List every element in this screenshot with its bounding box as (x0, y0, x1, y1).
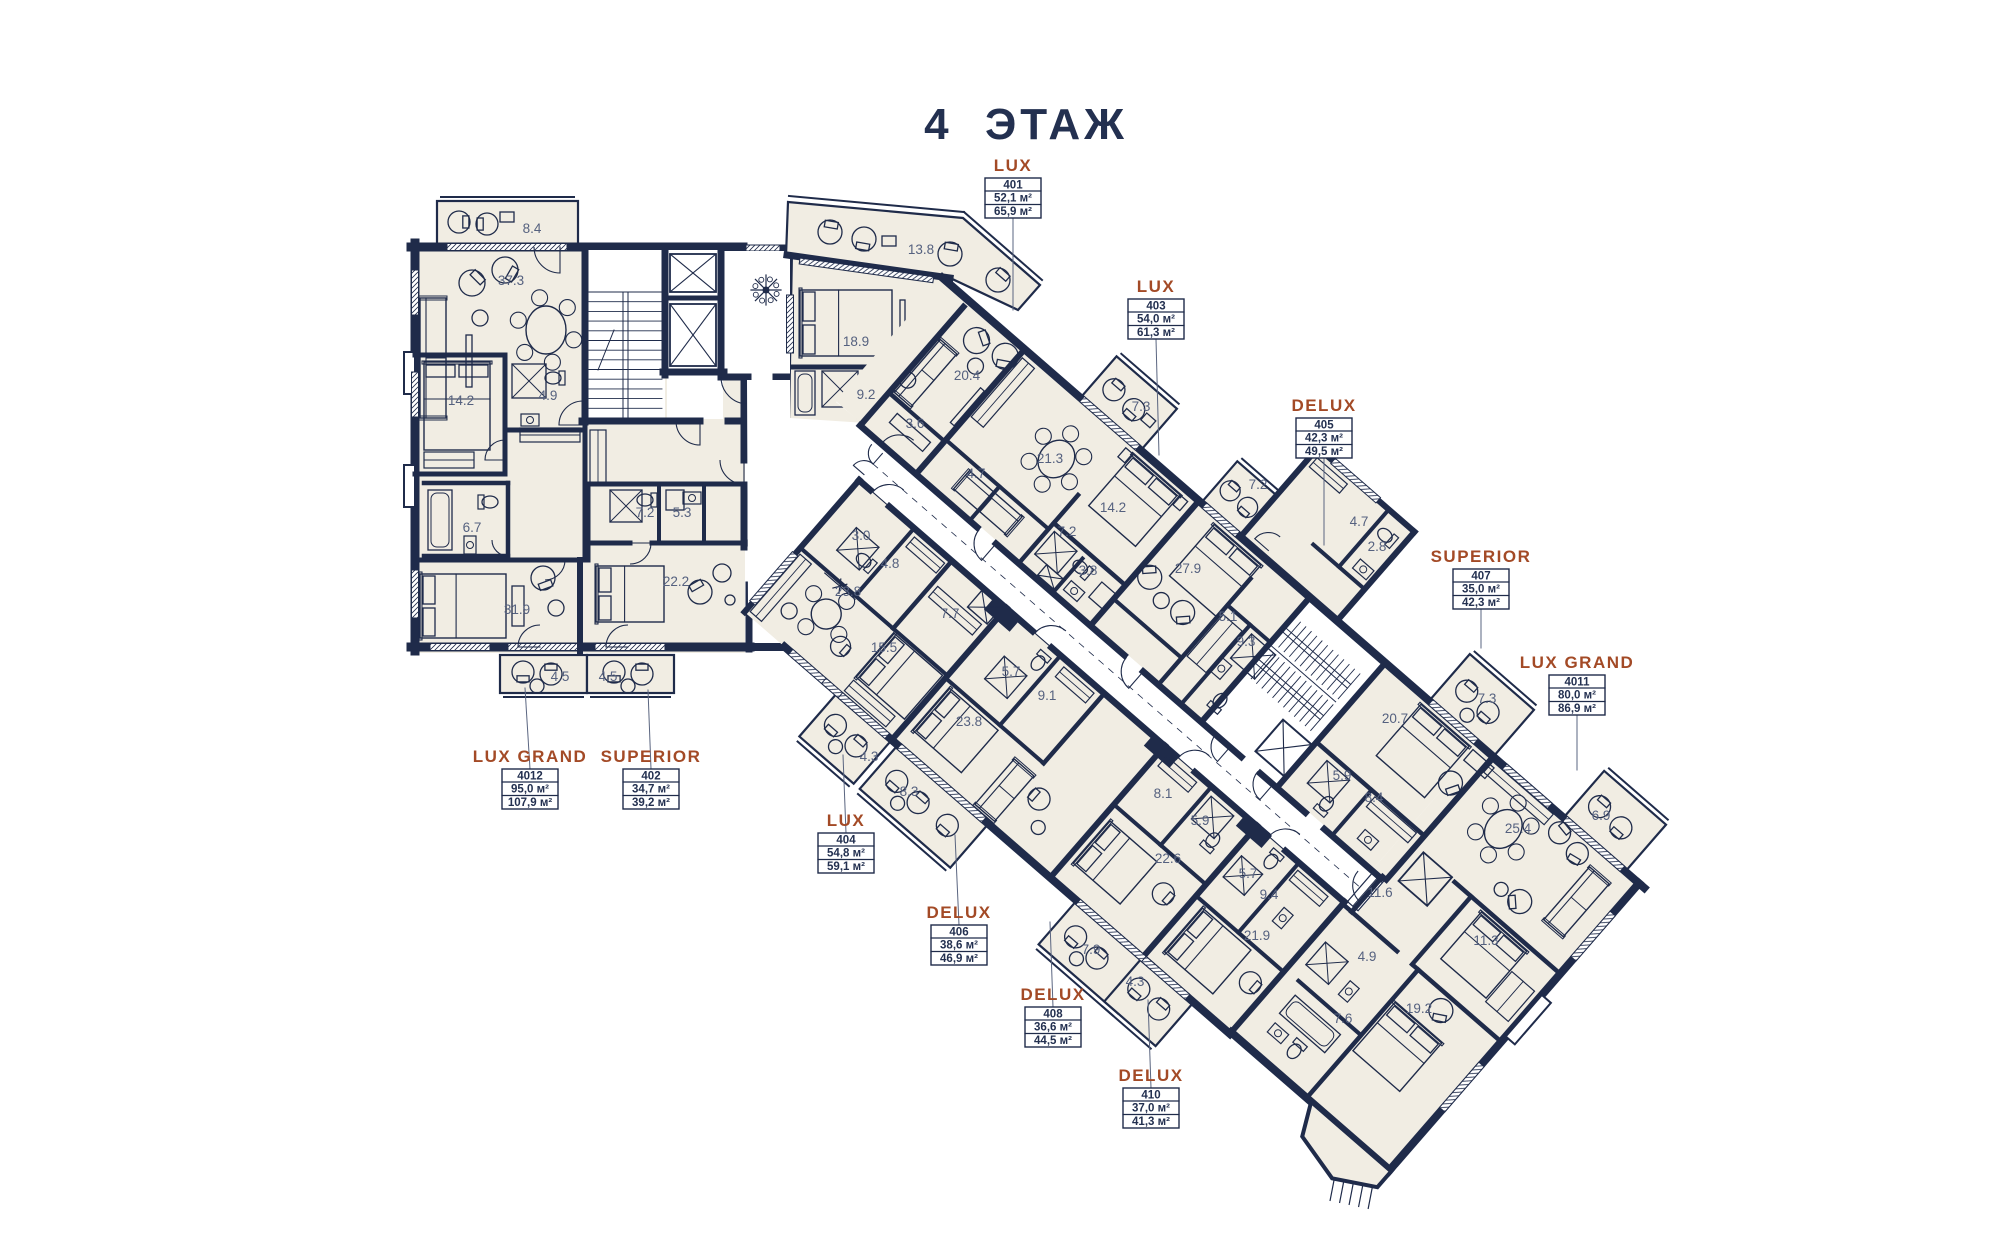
svg-text:54,0 м²: 54,0 м² (1137, 314, 1175, 326)
svg-text:3.6: 3.6 (906, 416, 925, 431)
svg-text:34,7 м²: 34,7 м² (632, 784, 670, 796)
svg-text:15.5: 15.5 (871, 640, 897, 655)
svg-text:7.6: 7.6 (1334, 1011, 1353, 1026)
svg-text:95,0 м²: 95,0 м² (511, 784, 549, 796)
svg-text:9.4: 9.4 (1260, 887, 1279, 902)
svg-text:4.7: 4.7 (1350, 514, 1369, 529)
svg-text:54,8 м²: 54,8 м² (827, 848, 865, 860)
svg-text:4.5: 4.5 (551, 669, 570, 684)
svg-text:23.8: 23.8 (956, 714, 982, 729)
svg-text:41,3 м²: 41,3 м² (1132, 1116, 1170, 1128)
svg-text:4.9: 4.9 (539, 388, 558, 403)
svg-text:14.2: 14.2 (448, 393, 474, 408)
svg-text:2.8: 2.8 (1368, 539, 1387, 554)
svg-text:31.9: 31.9 (504, 602, 530, 617)
svg-text:5.9: 5.9 (1333, 768, 1352, 783)
svg-text:19.2: 19.2 (1406, 1001, 1432, 1016)
svg-text:25.4: 25.4 (1505, 821, 1532, 836)
svg-text:7.3: 7.3 (1132, 399, 1151, 414)
svg-text:27.9: 27.9 (1175, 561, 1201, 576)
svg-text:8.4: 8.4 (523, 221, 542, 236)
svg-text:37.3: 37.3 (498, 273, 524, 288)
svg-text:5.7: 5.7 (1002, 664, 1021, 679)
svg-text:DELUX: DELUX (1020, 985, 1085, 1004)
svg-text:52,1 м²: 52,1 м² (994, 193, 1032, 205)
svg-text:7.2: 7.2 (1058, 524, 1077, 539)
svg-text:49,5 м²: 49,5 м² (1305, 446, 1343, 458)
svg-text:22.2: 22.2 (663, 574, 689, 589)
svg-text:4.8: 4.8 (881, 556, 900, 571)
svg-text:4011: 4011 (1565, 677, 1591, 689)
svg-text:11.6: 11.6 (1367, 885, 1392, 900)
svg-text:36,6 м²: 36,6 м² (1034, 1022, 1072, 1034)
svg-text:7.2: 7.2 (1249, 477, 1268, 492)
svg-text:4 ЭТАЖ: 4 ЭТАЖ (924, 100, 1128, 149)
svg-text:403: 403 (1146, 301, 1165, 313)
svg-text:9.3: 9.3 (1237, 634, 1256, 649)
svg-text:20.7: 20.7 (1382, 711, 1408, 726)
svg-text:SUPERIOR: SUPERIOR (601, 747, 702, 766)
svg-text:35,0 м²: 35,0 м² (1462, 584, 1500, 596)
svg-text:21.3: 21.3 (1037, 451, 1063, 466)
svg-text:405: 405 (1314, 420, 1334, 432)
svg-text:DELUX: DELUX (926, 903, 991, 922)
svg-text:SUPERIOR: SUPERIOR (1431, 547, 1532, 566)
svg-text:DELUX: DELUX (1118, 1066, 1183, 1085)
svg-text:107,9 м²: 107,9 м² (508, 797, 552, 809)
svg-text:44,5 м²: 44,5 м² (1034, 1035, 1072, 1047)
svg-text:4012: 4012 (517, 771, 543, 783)
svg-text:20.4: 20.4 (954, 368, 981, 383)
svg-text:39,2 м²: 39,2 м² (632, 797, 670, 809)
svg-text:13.8: 13.8 (908, 242, 934, 257)
svg-text:37,0 м²: 37,0 м² (1132, 1103, 1170, 1115)
svg-text:8.1: 8.1 (1154, 786, 1173, 801)
svg-text:18.9: 18.9 (843, 334, 869, 349)
svg-text:8.3: 8.3 (900, 784, 919, 799)
svg-text:38,6 м²: 38,6 м² (940, 940, 978, 952)
svg-text:46,9 м²: 46,9 м² (940, 953, 978, 965)
svg-text:LUX: LUX (1137, 277, 1176, 296)
svg-text:407: 407 (1471, 571, 1490, 583)
svg-text:11.3: 11.3 (1473, 933, 1498, 948)
svg-text:408: 408 (1043, 1009, 1063, 1021)
svg-text:23.8: 23.8 (835, 584, 861, 599)
svg-text:4.3: 4.3 (1126, 974, 1145, 989)
svg-text:65,9 м²: 65,9 м² (994, 206, 1032, 218)
svg-text:DELUX: DELUX (1291, 396, 1356, 415)
svg-text:6.7: 6.7 (463, 520, 482, 535)
svg-text:86,9 м²: 86,9 м² (1558, 703, 1596, 715)
svg-text:3.0: 3.0 (852, 528, 871, 543)
svg-text:61,3 м²: 61,3 м² (1137, 327, 1175, 339)
svg-text:21.9: 21.9 (1244, 928, 1270, 943)
svg-text:22.6: 22.6 (1155, 851, 1181, 866)
svg-text:42,3 м²: 42,3 м² (1462, 597, 1500, 609)
svg-text:7.7: 7.7 (941, 606, 960, 621)
svg-text:LUX GRAND: LUX GRAND (1520, 653, 1635, 672)
svg-text:402: 402 (641, 771, 660, 783)
svg-text:7.2: 7.2 (636, 505, 655, 520)
svg-text:LUX: LUX (994, 156, 1033, 175)
svg-text:42,3 м²: 42,3 м² (1305, 433, 1343, 445)
svg-text:4.3: 4.3 (860, 749, 879, 764)
svg-text:9.2: 9.2 (857, 387, 876, 402)
svg-text:7.9: 7.9 (1082, 942, 1101, 957)
svg-text:401: 401 (1003, 180, 1023, 192)
svg-text:59,1 м²: 59,1 м² (827, 861, 865, 873)
svg-text:80,0 м²: 80,0 м² (1558, 690, 1596, 702)
svg-text:406: 406 (949, 927, 968, 939)
svg-text:3.8: 3.8 (1079, 563, 1098, 578)
svg-text:4.5: 4.5 (599, 669, 618, 684)
svg-text:404: 404 (836, 835, 856, 847)
svg-text:8.4: 8.4 (1365, 790, 1384, 805)
svg-text:5.9: 5.9 (1191, 813, 1210, 828)
svg-text:LUX: LUX (827, 811, 866, 830)
svg-text:9.1: 9.1 (1038, 688, 1057, 703)
svg-text:14.2: 14.2 (1100, 500, 1126, 515)
svg-text:4.9: 4.9 (1358, 949, 1377, 964)
svg-text:5.1: 5.1 (1219, 609, 1238, 624)
svg-text:410: 410 (1141, 1090, 1160, 1102)
svg-text:6.9: 6.9 (1592, 808, 1611, 823)
svg-text:4.7: 4.7 (967, 466, 986, 481)
svg-text:7.3: 7.3 (1478, 691, 1497, 706)
svg-text:5.3: 5.3 (673, 505, 692, 520)
svg-text:5.7: 5.7 (1239, 866, 1258, 881)
svg-text:LUX GRAND: LUX GRAND (473, 747, 588, 766)
